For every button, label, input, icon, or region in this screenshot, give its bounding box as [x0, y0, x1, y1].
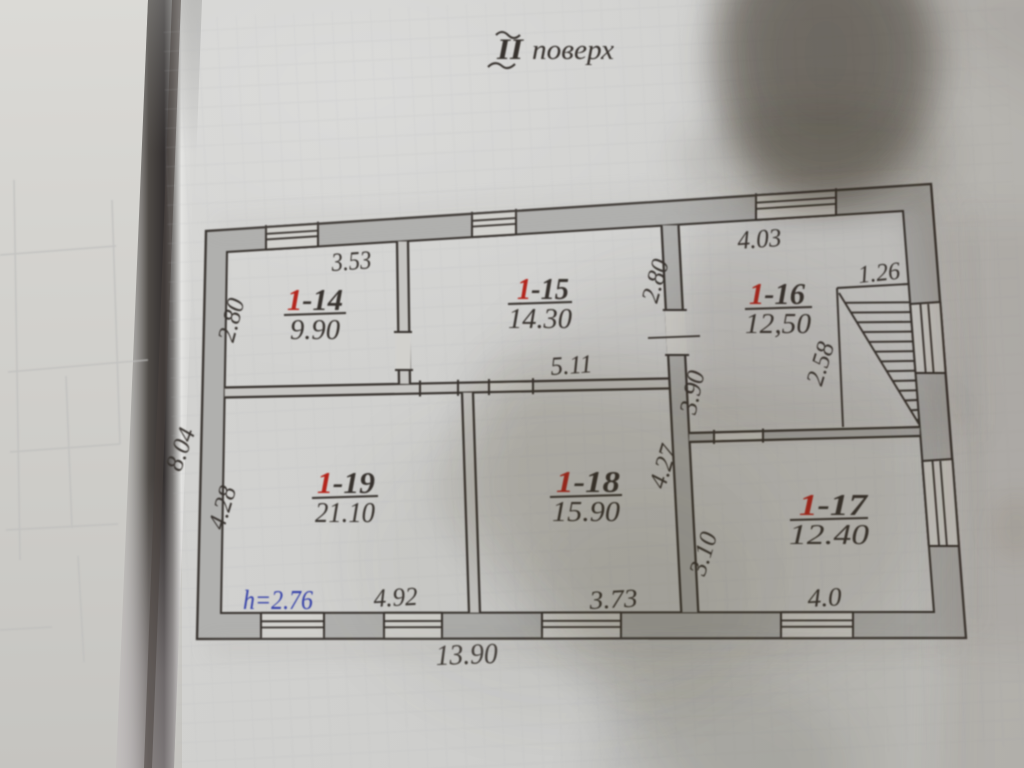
- svg-text:9.90: 9.90: [290, 315, 340, 346]
- svg-text:1-15: 1-15: [517, 271, 569, 306]
- svg-text:поверх: поверх: [532, 34, 614, 66]
- svg-text:h=2.76: h=2.76: [243, 585, 313, 615]
- svg-text:3.53: 3.53: [330, 245, 373, 277]
- svg-text:1-14: 1-14: [287, 282, 343, 317]
